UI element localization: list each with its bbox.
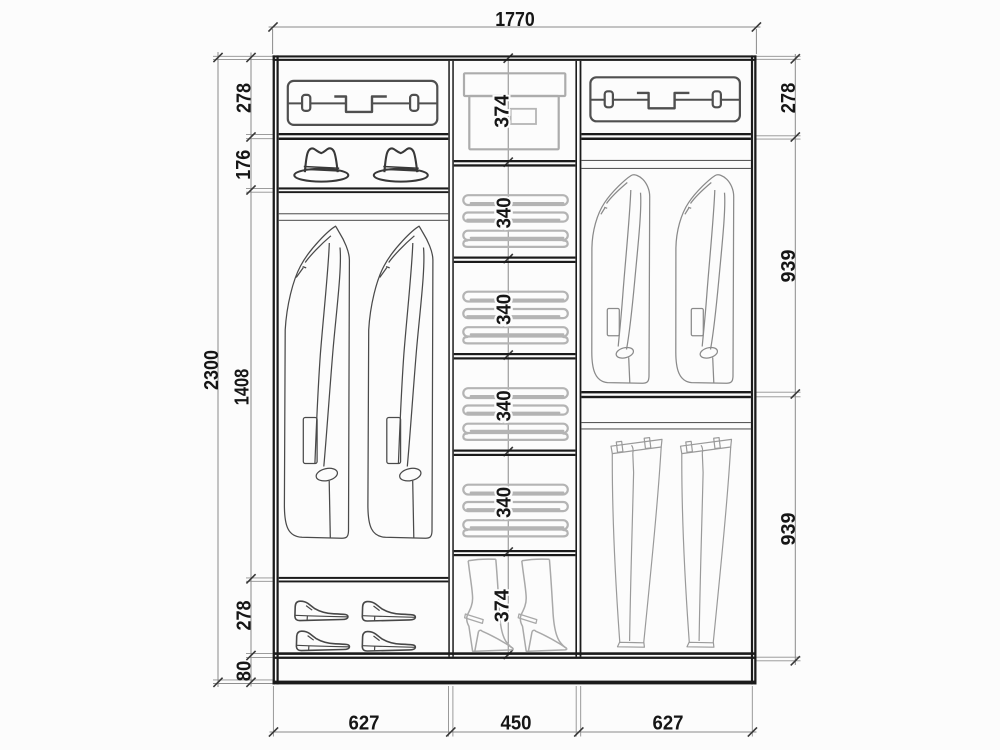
svg-text:1770: 1770: [495, 9, 535, 31]
svg-text:1408: 1408: [231, 369, 253, 406]
svg-text:340: 340: [493, 487, 515, 518]
svg-text:340: 340: [493, 390, 515, 421]
svg-text:278: 278: [233, 83, 255, 113]
svg-text:176: 176: [233, 150, 255, 180]
svg-text:627: 627: [653, 713, 684, 735]
svg-text:80: 80: [233, 661, 255, 682]
svg-text:2300: 2300: [201, 350, 223, 390]
svg-text:939: 939: [778, 250, 800, 283]
svg-text:627: 627: [349, 713, 380, 735]
svg-text:374: 374: [491, 94, 513, 128]
svg-text:278: 278: [233, 601, 255, 631]
svg-text:340: 340: [493, 197, 515, 228]
svg-text:939: 939: [778, 513, 800, 546]
svg-text:278: 278: [778, 83, 800, 114]
svg-text:374: 374: [492, 588, 514, 622]
svg-text:450: 450: [501, 713, 532, 735]
svg-text:340: 340: [493, 294, 515, 325]
